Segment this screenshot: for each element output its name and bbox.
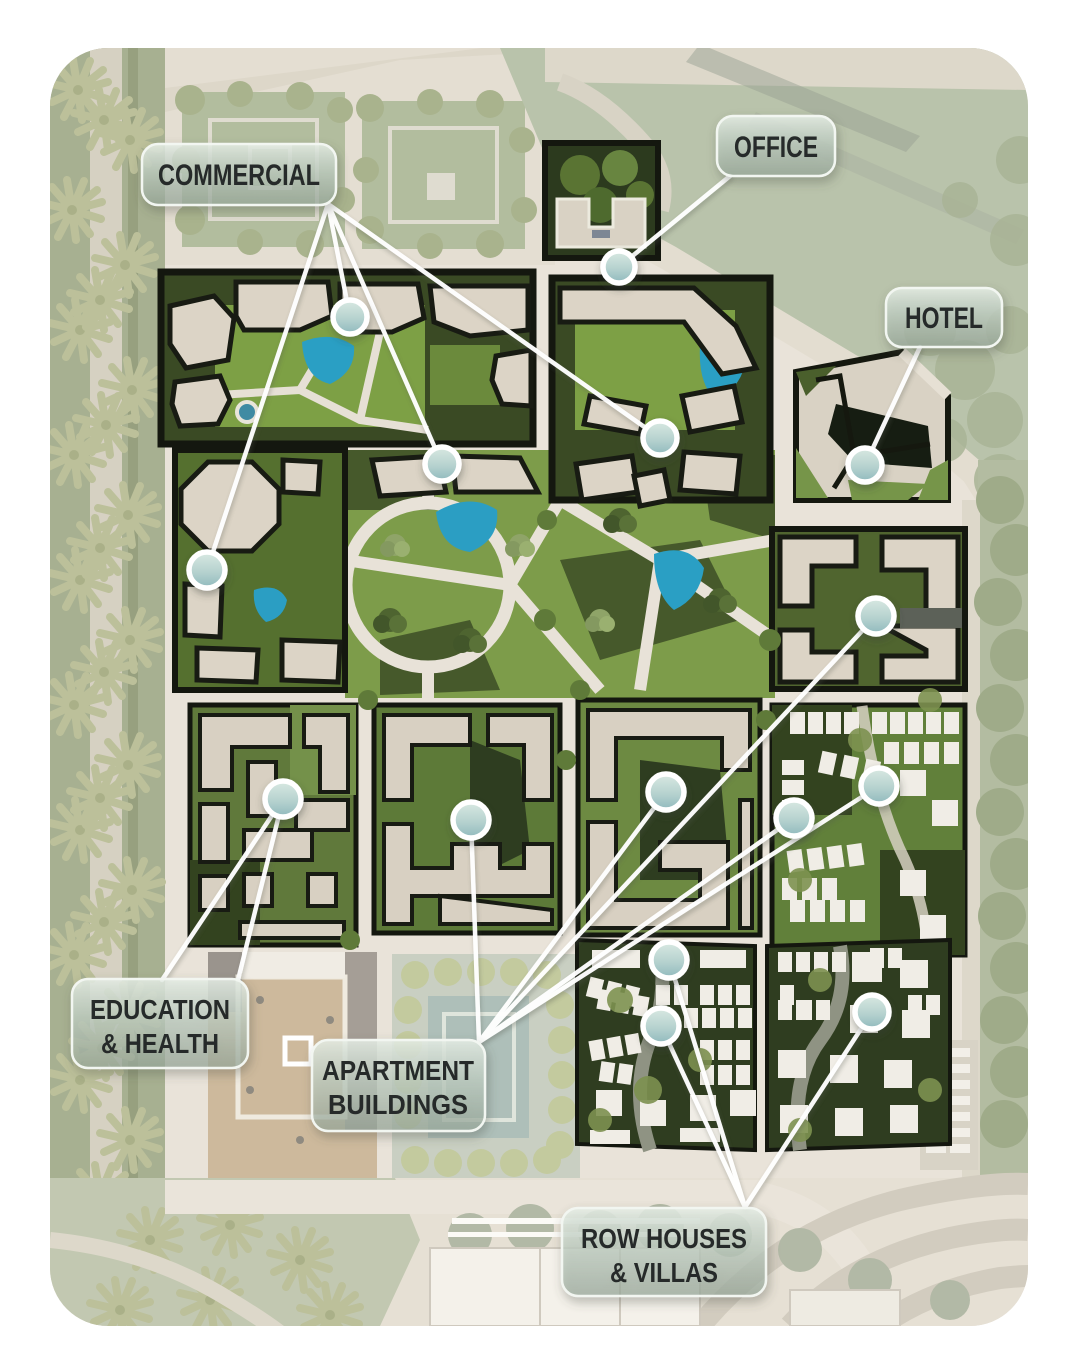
svg-text:HOTEL: HOTEL — [905, 302, 983, 335]
svg-text:& HEALTH: & HEALTH — [101, 1028, 219, 1059]
svg-text:BUILDINGS: BUILDINGS — [328, 1089, 468, 1120]
svg-text:COMMERCIAL: COMMERCIAL — [158, 159, 320, 192]
svg-text:& VILLAS: & VILLAS — [610, 1257, 718, 1288]
svg-text:APARTMENT: APARTMENT — [322, 1055, 474, 1086]
svg-text:ROW HOUSES: ROW HOUSES — [581, 1223, 747, 1254]
svg-text:OFFICE: OFFICE — [734, 131, 818, 164]
svg-text:EDUCATION: EDUCATION — [90, 994, 230, 1025]
